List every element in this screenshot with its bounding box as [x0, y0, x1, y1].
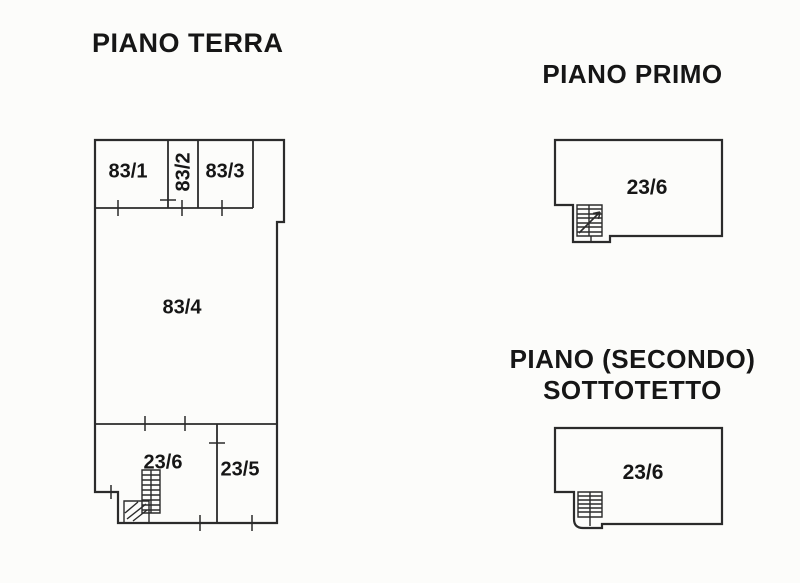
- room-label-terra-83-3: 83/3: [206, 161, 245, 184]
- terra-stair-treads: [142, 470, 160, 513]
- room-label-terra-83-4: 83/4: [163, 297, 202, 320]
- room-label-terra-83-2: 83/2: [173, 153, 196, 192]
- room-label-terra-83-1: 83/1: [109, 161, 148, 184]
- terra-stairs-symbol: [124, 470, 160, 523]
- room-label-terra-23-5: 23/5: [221, 459, 260, 482]
- title-piano-primo: PIANO PRIMO: [505, 59, 760, 90]
- secondo-stairs-symbol: [578, 492, 602, 526]
- room-label-primo-23-6: 23/6: [627, 176, 668, 200]
- room-label-terra-23-6: 23/6: [144, 452, 183, 475]
- secondo-stair-treads: [578, 492, 602, 526]
- room-label-secondo-23-6: 23/6: [623, 461, 664, 485]
- primo-stairs-symbol: [577, 205, 602, 242]
- title-piano-secondo-line2: SOTTOTETTO: [495, 375, 770, 406]
- scanned-floorplan-page: PIANO TERRA PIANO PRIMO PIANO (SECONDO) …: [0, 0, 800, 583]
- terra-stair-landing: [124, 501, 149, 523]
- title-piano-terra: PIANO TERRA: [92, 28, 284, 59]
- title-piano-secondo-sottotetto: PIANO (SECONDO) SOTTOTETTO: [495, 344, 770, 406]
- title-piano-secondo-line1: PIANO (SECONDO): [495, 344, 770, 375]
